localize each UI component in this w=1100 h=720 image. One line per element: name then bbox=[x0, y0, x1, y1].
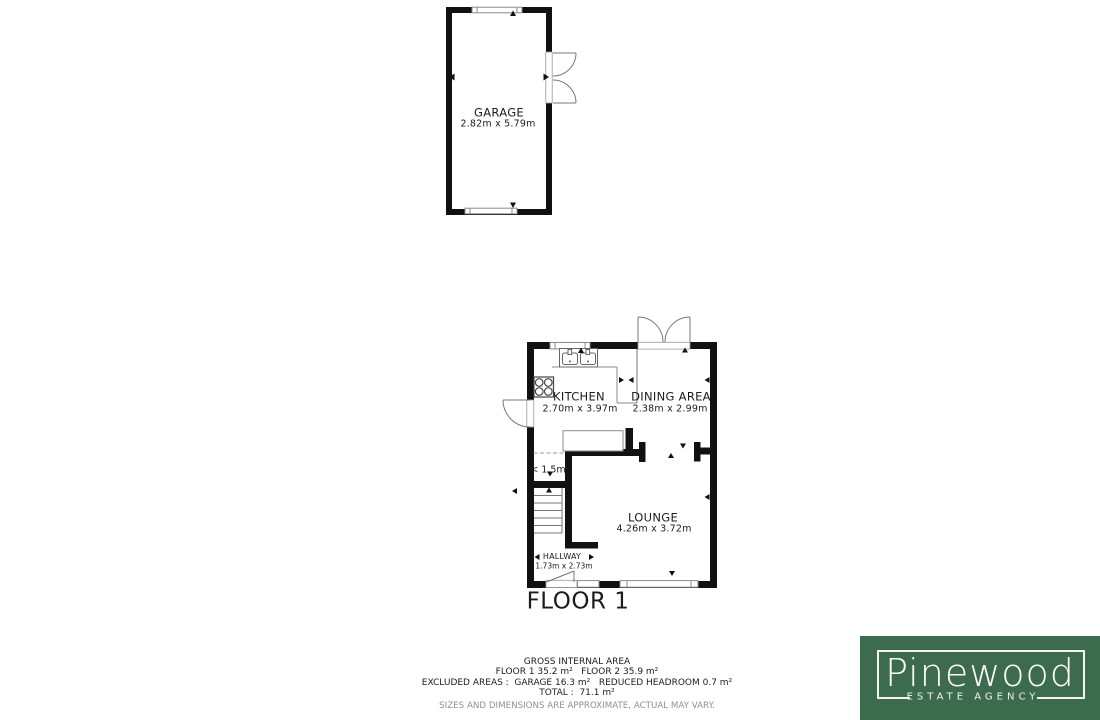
garage-label: GARAGE bbox=[474, 107, 524, 119]
dining-label: DINING AREA bbox=[631, 391, 711, 403]
dining-double-door bbox=[638, 317, 690, 349]
dining-dims: 2.38m x 2.99m bbox=[632, 404, 707, 414]
logo-frame-bottom-left bbox=[877, 697, 910, 699]
logo-brand: Pinewood bbox=[885, 651, 1075, 695]
gross-internal-area-title: GROSS INTERNAL AREA bbox=[422, 657, 732, 667]
garage-double-door bbox=[546, 52, 576, 103]
floor1-plan bbox=[503, 317, 714, 588]
lounge-window bbox=[620, 581, 698, 588]
floor-areas: FLOOR 1 35.2 m² FLOOR 2 35.9 m² bbox=[422, 667, 732, 677]
logo-frame-left bbox=[877, 650, 879, 699]
garage-dims: 2.82m x 5.79m bbox=[460, 119, 535, 129]
floor1-title: FLOOR 1 bbox=[527, 591, 630, 614]
agency-logo: Pinewood ESTATE AGENCY bbox=[860, 636, 1100, 720]
hallway-dims: 1.73m x 2.73m bbox=[535, 562, 592, 570]
kitchen-sink bbox=[560, 349, 598, 368]
logo-tagline: ESTATE AGENCY bbox=[907, 692, 1040, 703]
kitchen-hob bbox=[534, 377, 554, 397]
garage-top-window bbox=[472, 7, 522, 13]
logo-frame-bottom-right bbox=[1037, 697, 1085, 699]
kitchen-window bbox=[550, 343, 590, 349]
logo-frame-right bbox=[1083, 650, 1085, 699]
total-area: TOTAL : 71.1 m² bbox=[422, 688, 732, 698]
headroom-note: < 1.5m bbox=[530, 465, 565, 475]
excluded-areas: EXCLUDED AREAS : GARAGE 16.3 m² REDUCED … bbox=[422, 678, 732, 688]
lounge-dims: 4.26m x 3.72m bbox=[616, 524, 691, 534]
garage-bottom-window bbox=[465, 208, 517, 214]
lounge-label: LOUNGE bbox=[628, 512, 678, 524]
floorplan-page: GARAGE 2.82m x 5.79m KITCHEN 2.70m x 3.9… bbox=[0, 0, 1100, 720]
kitchen-side-door bbox=[503, 400, 534, 427]
disclaimer: SIZES AND DIMENSIONS ARE APPROXIMATE, AC… bbox=[422, 701, 732, 711]
hallway-window bbox=[578, 581, 600, 588]
area-summary: GROSS INTERNAL AREA FLOOR 1 35.2 m² FLOO… bbox=[422, 657, 732, 711]
kitchen-dims: 2.70m x 3.97m bbox=[542, 404, 617, 414]
kitchen-label: KITCHEN bbox=[553, 391, 605, 403]
